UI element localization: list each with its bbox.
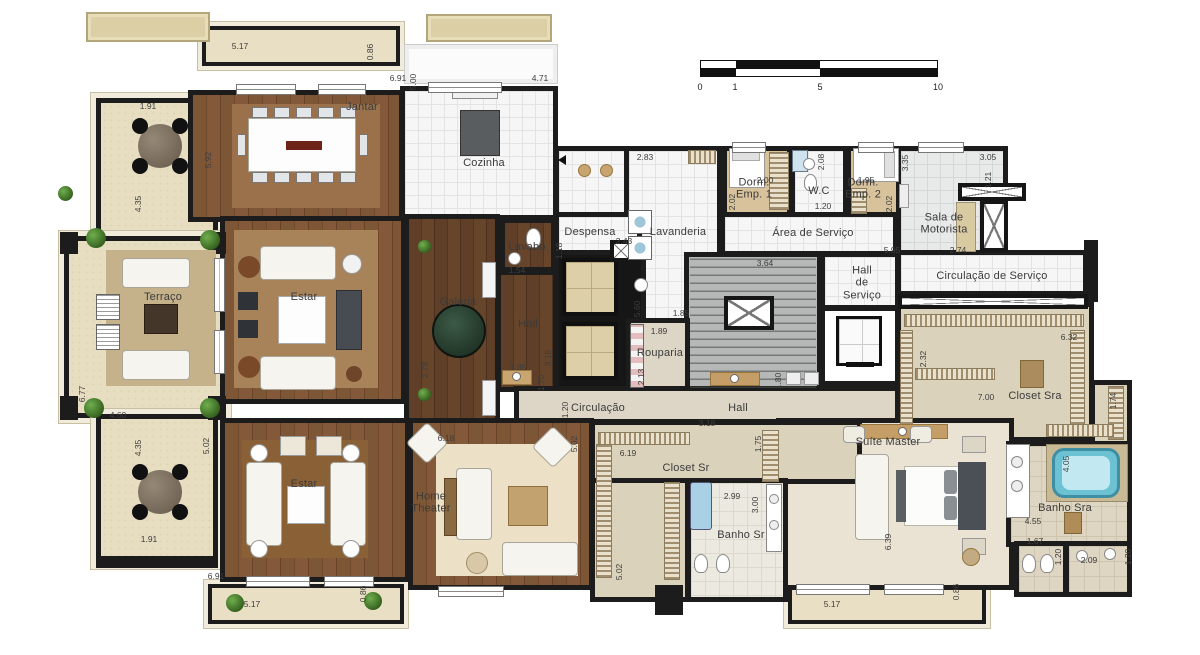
dimension-label: 6.77 xyxy=(77,386,87,403)
room-label: W.C xyxy=(808,185,829,197)
shaft-duct xyxy=(980,200,1008,252)
pillow xyxy=(884,151,895,178)
dimension-label: 1.95 xyxy=(858,175,875,185)
dimension-label: 6.91 xyxy=(390,73,407,83)
window xyxy=(318,84,366,95)
stair-void xyxy=(724,296,774,330)
dimension-label: 5.17 xyxy=(232,41,249,51)
dimension-label: 2.83 xyxy=(637,152,654,162)
dimension-label: 1.21 xyxy=(983,172,993,189)
dimension-label: 3.00 xyxy=(750,497,760,514)
dimension-label: 2.74 xyxy=(950,245,967,255)
room-label: Sala de Motorista xyxy=(920,212,967,237)
dimension-label: 5.17 xyxy=(824,599,841,609)
dimension-label: 6.32 xyxy=(1061,332,1078,342)
terrace-chair xyxy=(172,464,188,480)
service-elevator-cab xyxy=(836,316,882,366)
dimension-label: 1.20 xyxy=(1123,549,1133,566)
dimension-label: 3.64 xyxy=(757,258,774,268)
bed-headboard xyxy=(958,462,986,530)
dining-chair xyxy=(296,172,312,183)
dimension-label: 6.91 xyxy=(208,571,225,581)
room-label: Hall xyxy=(518,318,538,330)
wall-pier xyxy=(60,396,78,420)
cabinet xyxy=(688,150,716,164)
dimension-label: 6.19 xyxy=(620,448,637,458)
cabinet xyxy=(786,372,801,385)
window xyxy=(732,142,766,153)
decor-bowl xyxy=(512,372,521,381)
dining-chair xyxy=(274,172,290,183)
terrace-chair xyxy=(172,158,188,174)
sofa xyxy=(260,246,336,280)
pouf xyxy=(466,552,488,574)
sofa xyxy=(502,542,578,576)
sofa xyxy=(246,462,282,546)
dining-chair xyxy=(318,107,334,118)
closet-rack xyxy=(904,314,1084,327)
washbasin xyxy=(803,158,815,170)
side-table xyxy=(238,256,260,278)
armchair xyxy=(280,436,306,456)
terrace-chair xyxy=(172,504,188,520)
room-label: Estar xyxy=(291,291,318,303)
window xyxy=(858,142,894,153)
side-table xyxy=(342,254,362,274)
wall-pier xyxy=(655,585,683,615)
dimension-label: 2.09 xyxy=(1081,555,1098,565)
bidet xyxy=(1040,554,1054,573)
dimension-label: 1.20 xyxy=(815,201,832,211)
dimension-label: 2.43 xyxy=(616,236,633,246)
bed-bench xyxy=(896,470,906,522)
pouf xyxy=(238,320,258,338)
dimension-label: 5.17 xyxy=(244,599,261,609)
decor-bowl xyxy=(730,374,739,383)
window xyxy=(796,584,870,595)
plant xyxy=(84,398,104,418)
dimension-label: 1.74 xyxy=(1108,393,1118,410)
dimension-label: 4.35 xyxy=(133,440,143,457)
pillow xyxy=(944,496,957,520)
vent-duct xyxy=(898,294,1088,309)
dimension-label: 1.18 xyxy=(554,243,564,260)
window xyxy=(236,84,296,95)
dining-chair xyxy=(252,172,268,183)
toilet xyxy=(1022,554,1036,573)
dimension-label: 1.75 xyxy=(753,436,763,453)
dimension-label: 5.00 xyxy=(408,74,418,91)
closet-rack xyxy=(762,430,779,482)
dining-chair xyxy=(318,172,334,183)
plant xyxy=(58,186,73,201)
table-runner xyxy=(286,141,322,150)
side-table xyxy=(346,366,362,382)
closet-rack xyxy=(596,444,612,578)
room-label: Despensa xyxy=(564,226,615,238)
terrace-chair xyxy=(172,118,188,134)
marble-medallion xyxy=(432,304,486,358)
dimension-label: 2.78 xyxy=(420,362,430,379)
dining-chair xyxy=(359,134,368,156)
room-label: Circulação xyxy=(571,402,625,414)
sofa xyxy=(456,468,492,540)
coffee-table xyxy=(287,486,325,524)
dimension-label: 2.00 xyxy=(757,175,774,185)
dining-chair xyxy=(252,107,268,118)
closet-rack xyxy=(664,482,680,580)
ottoman xyxy=(1020,360,1044,388)
kitchen-island xyxy=(460,110,500,156)
window xyxy=(214,258,225,312)
dimension-label: 4.35 xyxy=(133,196,143,213)
elevator-door xyxy=(846,362,874,367)
dimension-label: 5.60 xyxy=(632,301,642,318)
scale-tick: 10 xyxy=(933,82,943,92)
dimension-label: 3.18 xyxy=(699,418,716,428)
dimension-label: 0.86 xyxy=(358,586,368,603)
scale-bar: 0 1 5 10 xyxy=(700,60,938,77)
dimension-label: 2.02 xyxy=(884,196,894,213)
dimension-label: 2.99 xyxy=(724,491,741,501)
dimension-label: 4.55 xyxy=(1025,516,1042,526)
scale-tick: 1 xyxy=(732,82,737,92)
dimension-label: 2.02 xyxy=(727,194,737,211)
wall-pier xyxy=(96,556,218,568)
coffee-table xyxy=(278,296,326,344)
scale-bar-row xyxy=(700,60,938,69)
closet-rack xyxy=(915,368,995,380)
dimension-label: 5.92 xyxy=(203,152,213,169)
room-label: Hall de Serviço xyxy=(843,265,881,302)
closet-rack xyxy=(1070,330,1085,430)
washbasin xyxy=(769,520,779,530)
dimension-label: 5.95 xyxy=(884,245,901,255)
terrace-armchair xyxy=(96,294,120,320)
plant xyxy=(200,398,220,418)
dimension-label: 5.02 xyxy=(614,564,624,581)
dimension-label: 0.86 xyxy=(365,44,375,61)
console-table xyxy=(482,380,496,416)
window xyxy=(438,586,504,597)
window xyxy=(918,142,964,153)
side-table xyxy=(238,356,260,378)
plant xyxy=(200,230,220,250)
dimension-label: 3.35 xyxy=(900,155,910,172)
elevator-cab xyxy=(562,258,618,316)
dimension-label: 5.02 xyxy=(569,436,579,453)
pouf xyxy=(962,548,980,566)
audio-icon xyxy=(558,155,566,165)
window xyxy=(428,82,502,93)
decor-bowl xyxy=(898,427,907,436)
washer xyxy=(628,210,652,234)
room-label: Terraço xyxy=(144,291,182,303)
dining-chair xyxy=(340,172,356,183)
room-label: Galeria xyxy=(440,296,477,308)
sofa xyxy=(260,356,336,390)
dimension-label: 4.71 xyxy=(532,73,549,83)
plant xyxy=(226,594,244,612)
room-label: Banho Sr xyxy=(717,529,764,541)
scale-tick: 5 xyxy=(817,82,822,92)
plant xyxy=(86,228,106,248)
terrace-sofa xyxy=(122,258,190,288)
closet-rack xyxy=(1046,424,1114,437)
room-label: Área de Serviço xyxy=(772,227,853,239)
window xyxy=(246,576,310,587)
dimension-label: 2.32 xyxy=(918,351,928,368)
room-label: Cozinha xyxy=(463,157,505,169)
dining-chair xyxy=(274,107,290,118)
scale-tick: 0 xyxy=(697,82,702,92)
pillow xyxy=(944,470,957,494)
dimension-label: 2.13 xyxy=(636,369,646,386)
room-label: Lavabo xyxy=(508,241,545,253)
dimension-label: 4.05 xyxy=(1061,456,1071,473)
dimension-label: 1.91 xyxy=(141,534,158,544)
wall-pier xyxy=(1084,240,1098,302)
side-table xyxy=(250,444,268,462)
dimension-label: 7.00 xyxy=(978,392,995,402)
planter-box xyxy=(426,14,552,42)
terrace-chair xyxy=(132,504,148,520)
room-shower-sra xyxy=(1064,541,1132,597)
dimension-label: 1.20 xyxy=(1053,549,1063,566)
stool xyxy=(1064,512,1082,534)
dimension-label: 4.60 xyxy=(110,410,127,420)
dimension-label: 3.15 xyxy=(543,350,553,367)
washbasin xyxy=(1011,480,1023,492)
nightstand xyxy=(962,436,986,453)
room-label: Suíte Master xyxy=(856,436,921,448)
wall-pier xyxy=(60,232,78,254)
terrace-armchair xyxy=(96,324,120,350)
room-label: Estar xyxy=(291,478,318,490)
side-table xyxy=(342,444,360,462)
chaise xyxy=(336,290,362,350)
shower xyxy=(690,482,712,530)
scale-bar-row xyxy=(700,68,938,77)
washbasin xyxy=(769,494,779,504)
terrace-chair xyxy=(132,158,148,174)
dimension-label: 6.18 xyxy=(438,433,455,443)
window xyxy=(214,330,225,374)
elevator-cab xyxy=(562,322,618,380)
dimension-label: 3.05 xyxy=(980,152,997,162)
room-label: Jantar xyxy=(346,101,378,113)
closet-rack xyxy=(900,330,913,430)
toilet xyxy=(694,554,708,573)
terrace-coffee-table xyxy=(144,304,178,334)
room-label: Hall xyxy=(728,402,748,414)
plant xyxy=(418,240,431,253)
room-label: Circulação de Serviço xyxy=(936,270,1047,282)
laundry-sink xyxy=(634,278,648,292)
room-label: Closet Sra xyxy=(1008,390,1061,402)
plant xyxy=(418,388,431,401)
bar-stool xyxy=(578,164,591,177)
dimension-label: 6.39 xyxy=(883,534,893,551)
room-label: Rouparia xyxy=(637,347,683,359)
terrace-sofa xyxy=(122,350,190,380)
window xyxy=(884,584,944,595)
dimension-label: 1.67 xyxy=(1027,536,1044,546)
side-table xyxy=(342,540,360,558)
cabinet xyxy=(804,372,819,385)
dimension-label: 1.70 xyxy=(536,375,546,392)
floor-plan: 0 1 5 10 JantarCozinhaTerraçoEstarEstarG… xyxy=(0,0,1200,655)
dimension-label: 0.86 xyxy=(951,584,961,601)
dining-chair xyxy=(296,107,312,118)
room-label: Banho Sra xyxy=(1038,502,1092,514)
terrace-chair xyxy=(132,464,148,480)
sofa xyxy=(330,462,366,546)
washbasin xyxy=(508,252,521,265)
dimension-label: 1.54 xyxy=(509,265,526,275)
dimension-label: 1.80 xyxy=(773,373,783,390)
washbasin xyxy=(1011,456,1023,468)
shower-fixture xyxy=(1104,548,1116,560)
console-table xyxy=(482,262,496,298)
armchair xyxy=(316,436,342,456)
room-label: Lavanderia xyxy=(650,226,706,238)
planter-box xyxy=(86,12,210,42)
bidet xyxy=(716,554,730,573)
bar-stool xyxy=(600,164,613,177)
side-table xyxy=(250,540,268,558)
dimension-label: 1.91 xyxy=(140,101,157,111)
dining-chair xyxy=(237,134,246,156)
dimension-label: 2.08 xyxy=(816,154,826,171)
pouf xyxy=(238,292,258,310)
room-label: Closet Sr xyxy=(662,462,709,474)
sofa xyxy=(855,454,889,540)
dimension-label: 1.85 xyxy=(673,308,690,318)
dimension-label: 1.89 xyxy=(651,326,668,336)
room-label: Home Theater xyxy=(411,491,450,516)
coffee-table xyxy=(508,486,548,526)
dimension-label: 5.02 xyxy=(201,438,211,455)
dimension-label: 1.20 xyxy=(560,402,570,419)
terrace-chair xyxy=(132,118,148,134)
dimension-label: 1.85 xyxy=(510,362,527,372)
shelf xyxy=(899,184,909,208)
